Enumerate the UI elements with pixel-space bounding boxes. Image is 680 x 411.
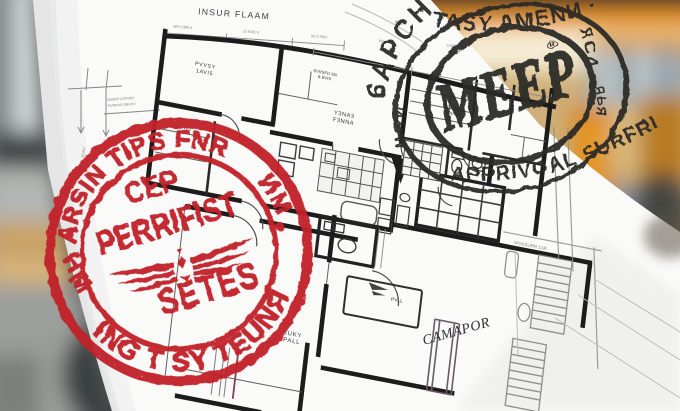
svg-text:МЯИ: МЯИ	[391, 104, 411, 150]
